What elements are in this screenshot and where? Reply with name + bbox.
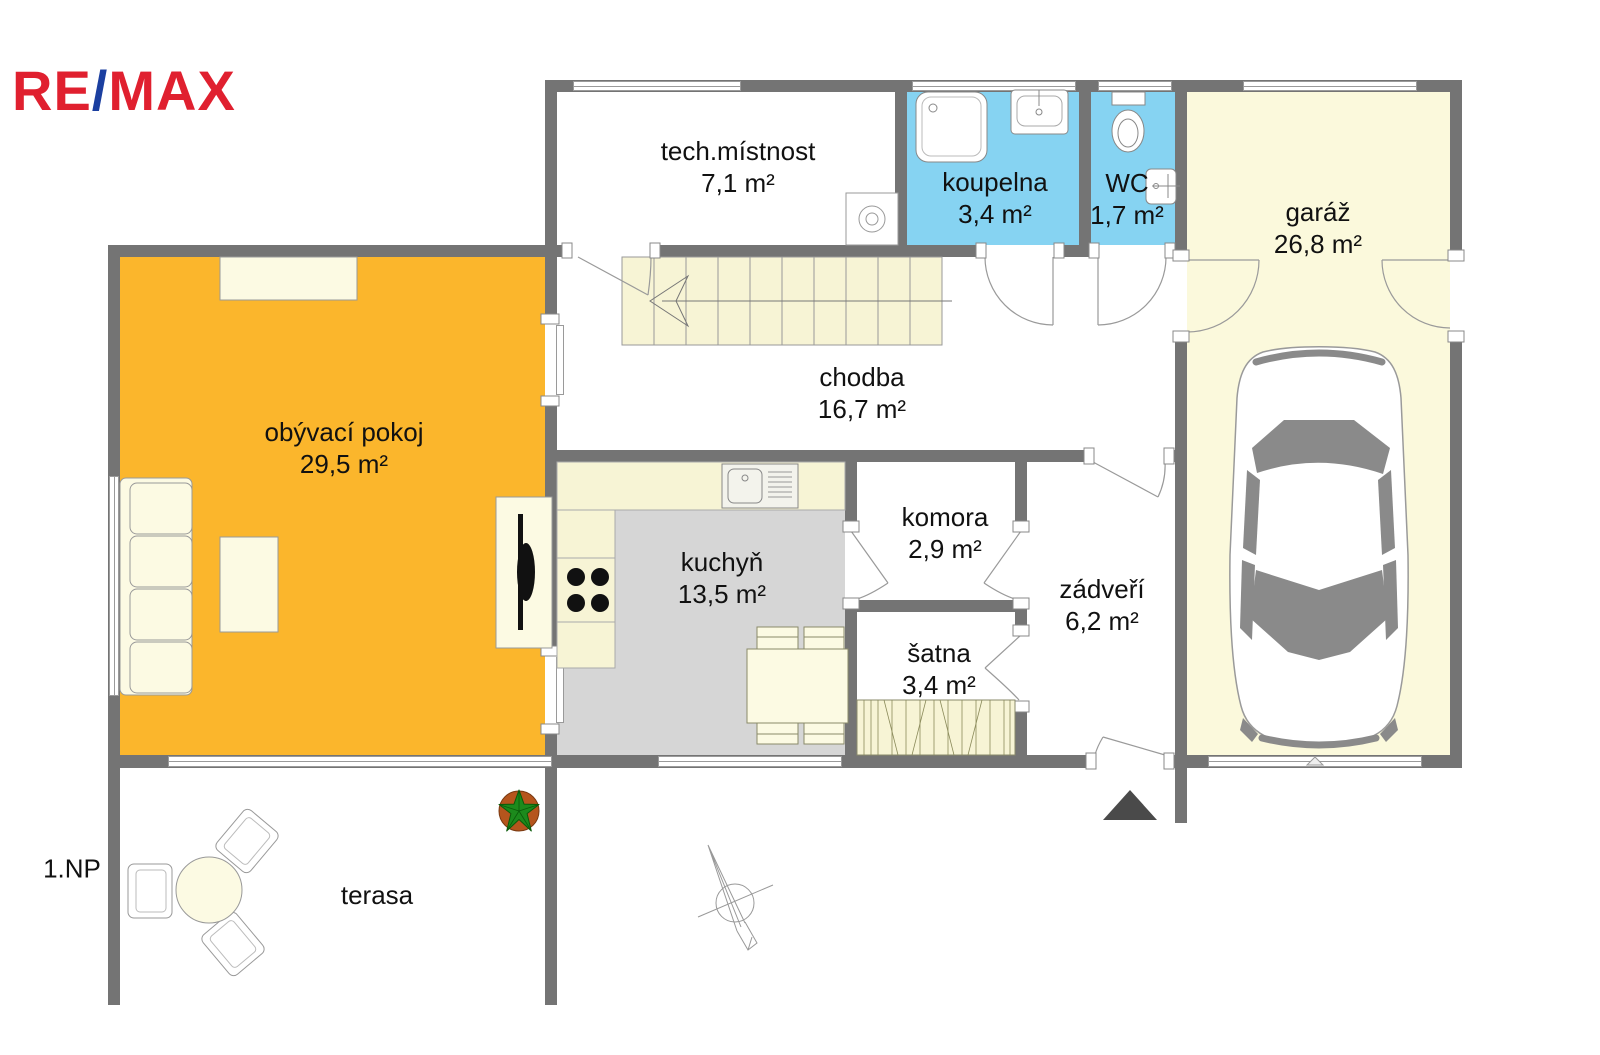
- label-obyvaci-pokoj: obývací pokoj 29,5 m²: [265, 416, 424, 480]
- bathroom-sink: [1011, 90, 1068, 134]
- stairs: [622, 257, 952, 345]
- entrance-arrow: [1103, 790, 1157, 820]
- label-tech-mistnost: tech.místnost 7,1 m²: [661, 135, 816, 199]
- wardrobe: [857, 700, 1015, 755]
- terrace-chair: [128, 864, 172, 918]
- sofa: [120, 478, 192, 695]
- coffee-table: [220, 537, 278, 632]
- label-wc: WC 1,7 m²: [1090, 167, 1164, 231]
- label-kuchyn: kuchyň 13,5 m²: [678, 546, 766, 610]
- floor-plan: RE/MAX: [0, 0, 1600, 1055]
- kitchen-sink: [722, 464, 798, 508]
- plant: [499, 790, 539, 831]
- label-chodba: chodba 16,7 m²: [818, 361, 906, 425]
- label-zadveri: zádveří 6,2 m²: [1059, 573, 1144, 637]
- car: [1230, 347, 1408, 745]
- terrace-table: [176, 857, 242, 923]
- floor-level-label: 1.NP: [43, 854, 101, 885]
- stove: [557, 558, 615, 622]
- garage-door-marker: [1307, 757, 1323, 765]
- toilet: [1112, 92, 1145, 152]
- tv-stand: [496, 497, 552, 648]
- label-komora: komora 2,9 m²: [902, 501, 989, 565]
- sideboard: [220, 257, 357, 300]
- label-terasa: terasa: [341, 879, 413, 911]
- washing-machine: [846, 193, 898, 245]
- label-satna: šatna 3,4 m²: [902, 637, 976, 701]
- compass-icon: [698, 845, 773, 950]
- label-garaz: garáž 26,8 m²: [1274, 196, 1362, 260]
- label-koupelna: koupelna 3,4 m²: [942, 166, 1048, 230]
- shower: [916, 92, 987, 162]
- dining-table: [747, 627, 848, 744]
- terrace-table-set: [128, 807, 281, 978]
